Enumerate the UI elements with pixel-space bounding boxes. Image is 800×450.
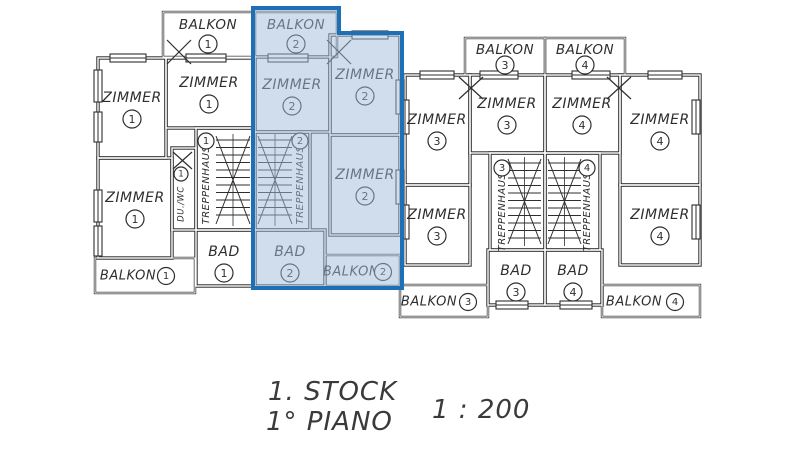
unit-number-badge: 4 — [564, 283, 582, 301]
room-outline — [405, 185, 470, 265]
unit-number: 3 — [465, 297, 471, 308]
room-label-balkon: BALKON — [401, 295, 457, 310]
unit-number-badge: 1 — [158, 268, 175, 285]
floor-plan-canvas: BALKONBALKONZIMMERZIMMERZIMMERDU./WCTREP… — [0, 0, 800, 450]
unit-number: 3 — [499, 163, 505, 174]
room-label-bad: BAD — [557, 263, 588, 279]
unit-number-badge: 3 — [428, 132, 446, 150]
unit-number-badge: 1 — [198, 133, 214, 149]
unit-number: 4 — [657, 135, 664, 148]
unit-number: 1 — [203, 136, 209, 147]
window-symbol — [420, 71, 454, 79]
unit-number-badge: 4 — [651, 132, 669, 150]
unit-number: 3 — [502, 59, 509, 72]
unit-number: 1 — [129, 113, 136, 126]
room-label-bad: BAD — [208, 244, 239, 260]
door-swing-icon — [173, 152, 192, 169]
window-symbol — [94, 190, 102, 222]
room-label-du-wc: DU./WC — [177, 186, 187, 222]
window-symbol — [94, 70, 102, 102]
room-label-zimmer: ZIMMER — [101, 90, 161, 106]
room-outline — [98, 158, 172, 258]
unit-number-badge: 3 — [496, 56, 514, 74]
unit-number: 4 — [582, 59, 589, 72]
door-swing-icon — [167, 40, 191, 64]
room-label-zimmer: ZIMMER — [406, 207, 466, 223]
window-symbol — [110, 54, 146, 62]
room-label-balkon: BALKON — [100, 269, 156, 284]
drawing-scale: 1 : 200 — [432, 395, 530, 425]
unit-number: 4 — [579, 119, 586, 132]
stairs-icon — [548, 157, 581, 246]
unit-number-badge: 4 — [573, 116, 591, 134]
unit-number-badge: 1 — [200, 95, 218, 113]
window-symbol — [692, 205, 700, 239]
floor-plan: BALKONBALKONZIMMERZIMMERZIMMERDU./WCTREP… — [0, 0, 800, 450]
wall-core — [405, 185, 470, 265]
wall-core — [98, 58, 166, 158]
window-symbol — [94, 112, 102, 142]
unit-number: 1 — [163, 271, 169, 282]
room-outline — [405, 75, 470, 185]
window-symbol — [94, 226, 102, 256]
unit-number-badge: 1 — [174, 167, 188, 181]
unit-number-badge: 4 — [576, 56, 594, 74]
unit-number-badge: 1 — [126, 210, 144, 228]
room-outline — [620, 185, 700, 265]
unit-number: 4 — [584, 163, 590, 174]
room-label-bad: BAD — [500, 263, 531, 279]
stairs-icon — [508, 157, 541, 246]
stairs-icon — [216, 134, 250, 226]
unit-number: 4 — [672, 297, 678, 308]
unit-number-badge: 3 — [507, 283, 525, 301]
window-symbol — [496, 301, 528, 309]
unit-number-badge: 3 — [494, 160, 510, 176]
room-outline — [545, 75, 620, 153]
unit-number: 1 — [178, 170, 183, 180]
selected-unit-highlight[interactable] — [253, 8, 402, 288]
unit-number-badge: 3 — [498, 116, 516, 134]
window-symbol — [186, 54, 226, 62]
room-label-treppenhaus: TREPPENHAUS — [582, 172, 593, 251]
window-symbol — [648, 71, 682, 79]
room-label-balkon: BALKON — [606, 295, 662, 310]
room-label-treppenhaus: TREPPENHAUS — [201, 145, 212, 224]
unit-number: 1 — [132, 213, 139, 226]
floor-title-german: 1. STOCK — [268, 377, 398, 407]
unit-number-badge: 3 — [460, 294, 477, 311]
unit-number: 3 — [504, 119, 511, 132]
unit-number: 3 — [434, 230, 441, 243]
unit-number-badge: 1 — [199, 35, 217, 53]
wall-core — [545, 75, 620, 153]
unit-number: 1 — [221, 267, 228, 280]
unit-number: 1 — [205, 38, 212, 51]
unit-number: 1 — [206, 98, 213, 111]
room-outline — [470, 75, 545, 153]
wall-core — [620, 185, 700, 265]
unit-number: 3 — [513, 286, 520, 299]
room-outline — [620, 75, 700, 185]
unit-number: 4 — [657, 230, 664, 243]
wall-core — [98, 158, 172, 258]
wall-core — [620, 75, 700, 185]
floor-title-italian: 1° PIANO — [266, 407, 393, 437]
unit-number-badge: 1 — [215, 264, 233, 282]
room-label-zimmer: ZIMMER — [629, 207, 689, 223]
window-symbol — [560, 301, 592, 309]
wall-core — [470, 75, 545, 153]
wall-core — [405, 75, 470, 185]
room-label-zimmer: ZIMMER — [551, 96, 611, 112]
unit-number-badge: 4 — [667, 294, 684, 311]
room-label-balkon: BALKON — [179, 17, 237, 33]
room-label-zimmer: ZIMMER — [406, 112, 466, 128]
room-label-zimmer: ZIMMER — [178, 75, 238, 91]
unit-number-badge: 4 — [651, 227, 669, 245]
room-label-zimmer: ZIMMER — [629, 112, 689, 128]
unit-number: 4 — [570, 286, 577, 299]
room-label-treppenhaus: TREPPENHAUS — [497, 172, 508, 251]
unit-number-badge: 4 — [579, 160, 595, 176]
room-outline — [98, 58, 166, 158]
room-label-zimmer: ZIMMER — [104, 190, 164, 206]
unit-number: 3 — [434, 135, 441, 148]
room-outline — [166, 58, 253, 128]
window-symbol — [692, 100, 700, 134]
unit-number-badge: 3 — [428, 227, 446, 245]
unit-number-badge: 1 — [123, 110, 141, 128]
room-label-zimmer: ZIMMER — [476, 96, 536, 112]
wall-core — [166, 58, 253, 128]
